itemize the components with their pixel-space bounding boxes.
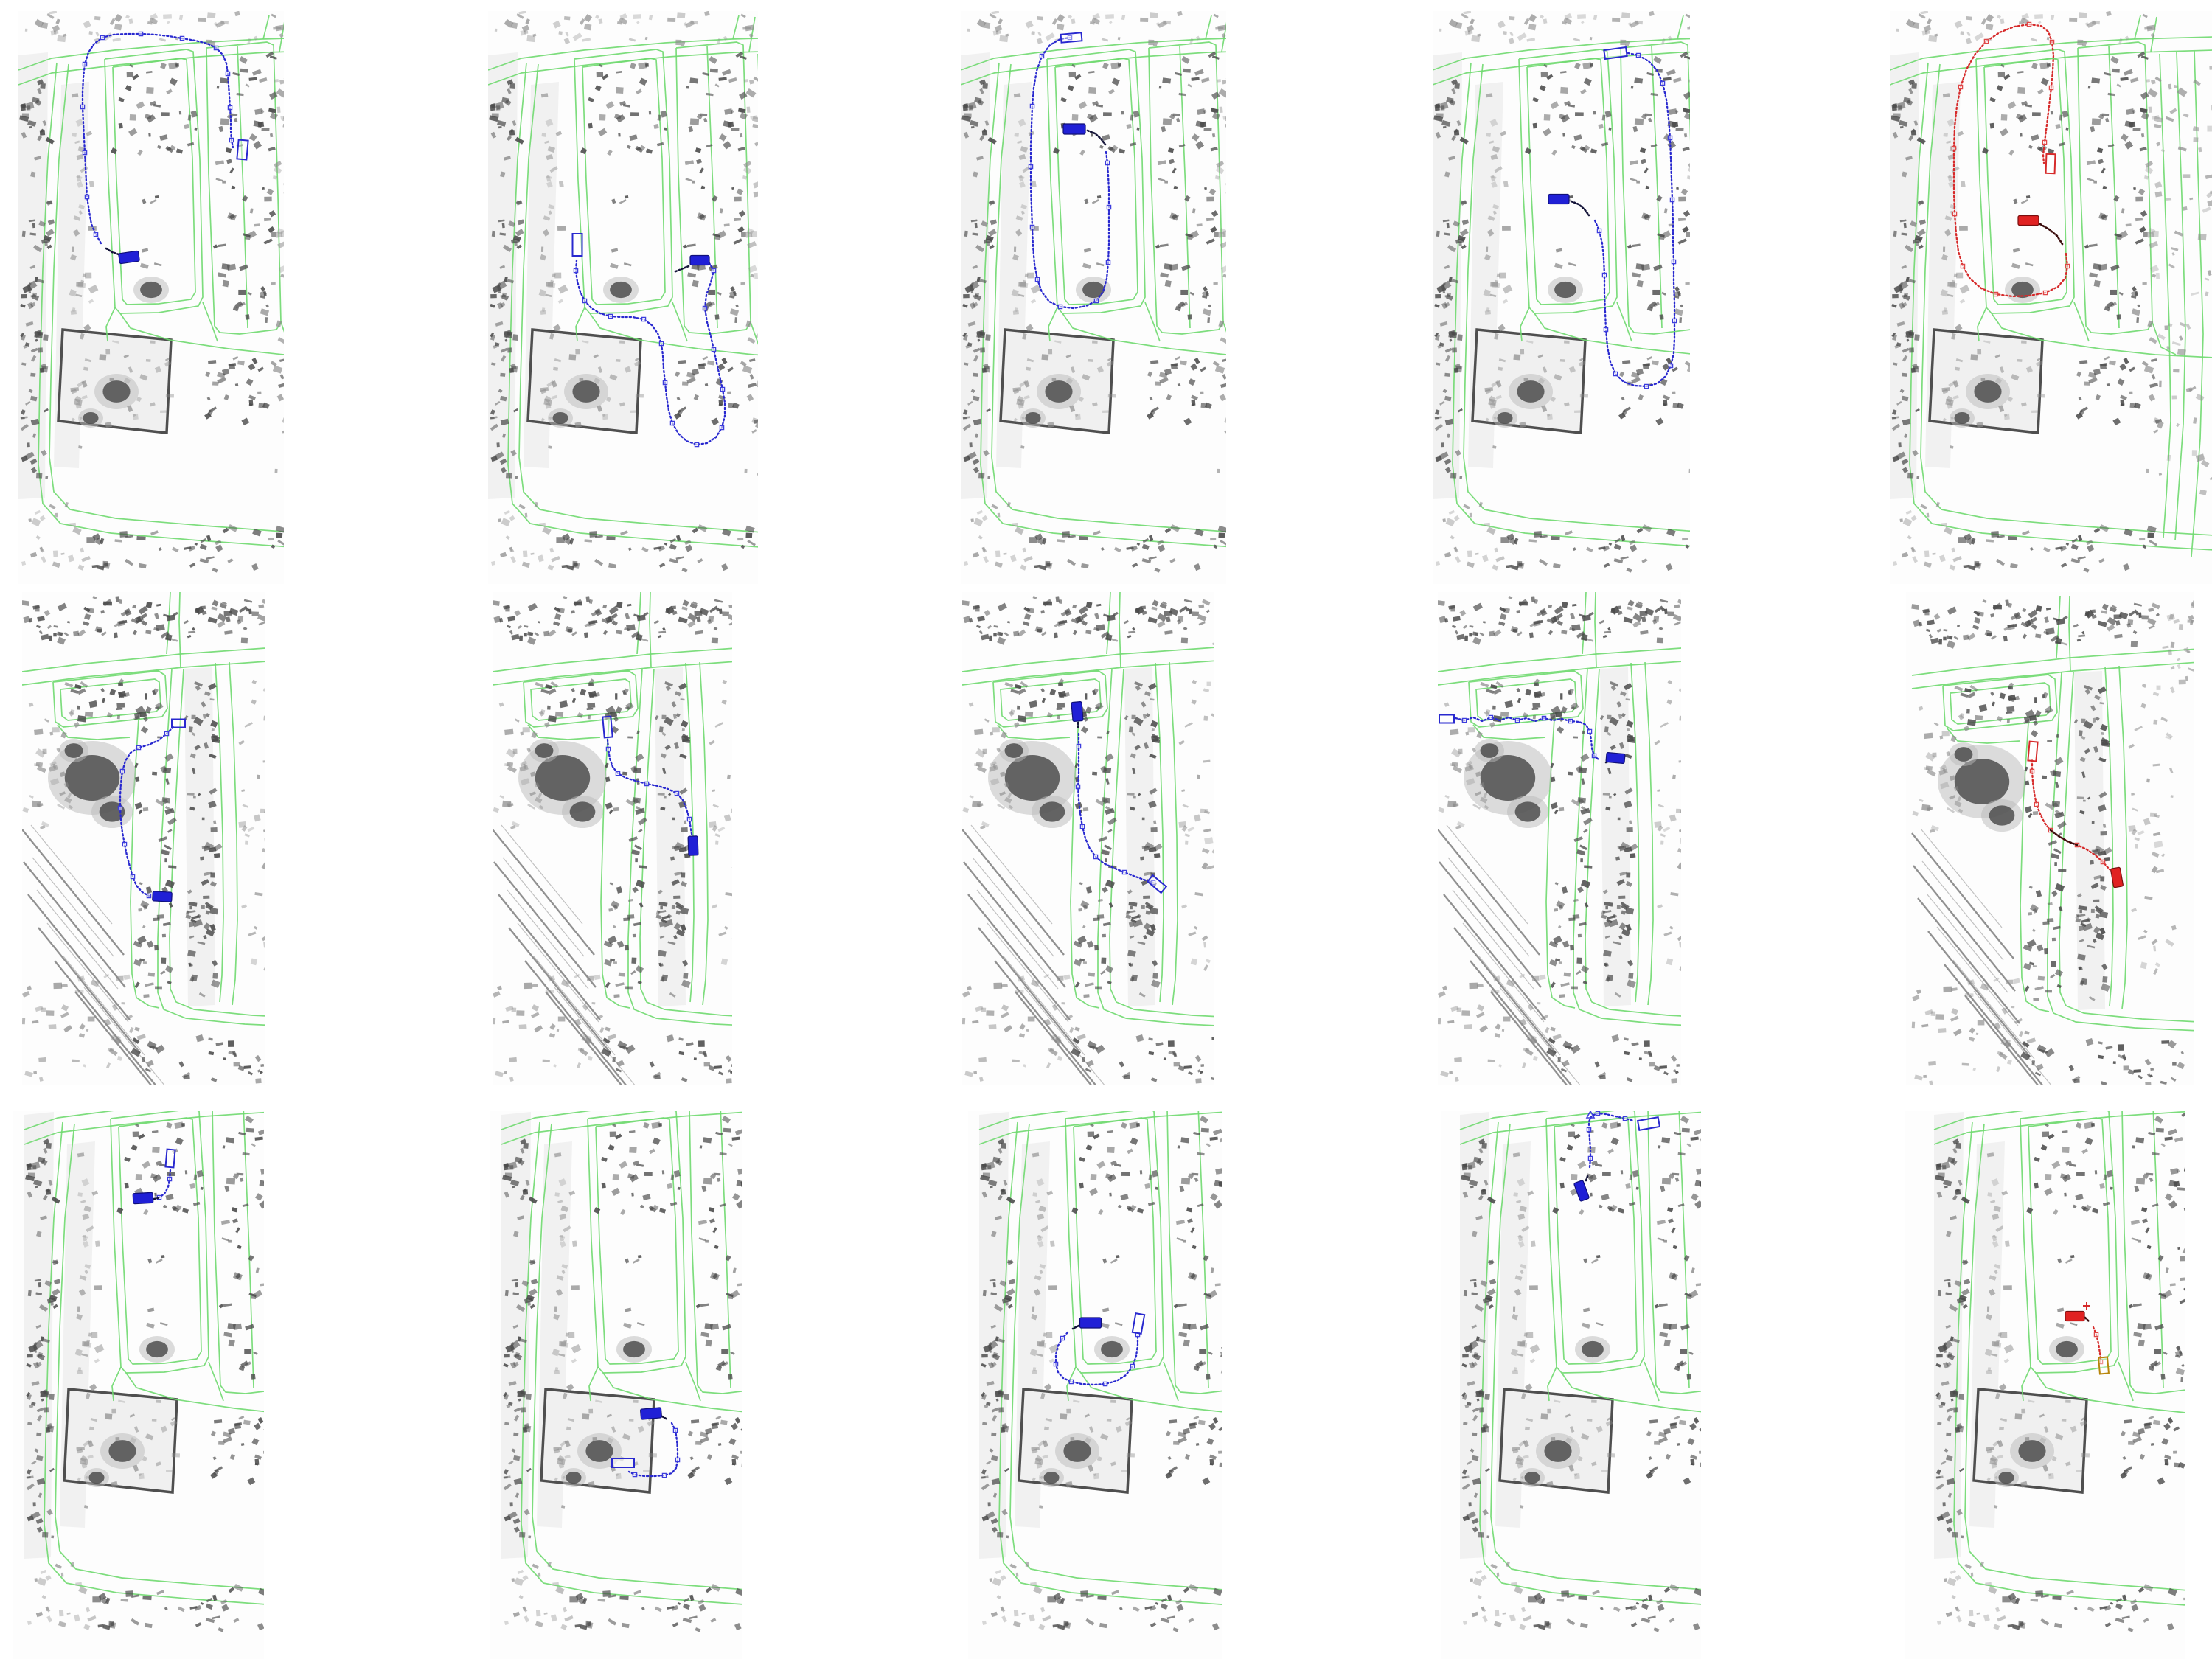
waypoint-marker <box>1961 264 1964 268</box>
vehicle-box <box>1063 124 1085 134</box>
tree-blob <box>1481 743 1499 758</box>
map-canvas-r3c1 <box>13 1111 264 1659</box>
waypoint-marker <box>641 317 645 321</box>
waypoint-marker <box>720 425 723 429</box>
tree-blob <box>1043 1472 1059 1484</box>
waypoint-marker <box>1489 715 1492 719</box>
tree-blob <box>585 1440 613 1462</box>
tree-blob <box>146 1341 168 1357</box>
waypoint-marker <box>1054 1362 1057 1366</box>
map-canvas-r2c2 <box>493 592 732 1085</box>
waypoint-marker <box>582 299 586 302</box>
tree-blob <box>570 801 596 821</box>
waypoint-marker <box>136 745 140 749</box>
tree-blob <box>1974 380 2001 403</box>
waypoint-marker <box>164 731 168 735</box>
waypoint-marker <box>118 806 122 810</box>
waypoint-marker <box>1644 384 1648 388</box>
waypoint-marker <box>1107 205 1110 209</box>
waypoint-marker <box>1587 1127 1590 1131</box>
trajectory-figure <box>0 0 2212 1659</box>
waypoint-marker <box>616 771 619 775</box>
tree-blob <box>1025 412 1040 424</box>
tree-blob <box>1045 380 1072 403</box>
map-canvas-r2c4 <box>1438 592 1681 1085</box>
vehicle-box <box>133 1192 153 1203</box>
waypoint-marker <box>1093 855 1097 858</box>
tree-blob <box>88 1472 104 1484</box>
waypoint-marker <box>1592 754 1596 757</box>
waypoint-marker <box>83 62 86 66</box>
waypoint-marker <box>1069 1380 1073 1383</box>
map-canvas-r3c2 <box>490 1111 742 1659</box>
tree-blob <box>552 412 568 424</box>
tree-blob <box>102 380 130 403</box>
waypoint-marker <box>120 769 124 773</box>
waypoint-marker <box>1994 292 1997 296</box>
map-panel-r1c4 <box>1433 11 1690 584</box>
waypoint-marker <box>83 150 86 154</box>
map-panel-r1c5 <box>1890 11 2212 584</box>
tree-blob <box>2018 1440 2045 1462</box>
waypoint-marker <box>662 1473 666 1477</box>
waypoint-marker <box>1672 319 1676 322</box>
waypoint-marker <box>1130 1364 1134 1368</box>
waypoint-marker <box>1515 718 1519 722</box>
waypoint-marker <box>122 842 126 846</box>
tree-blob <box>1101 1341 1123 1357</box>
waypoint-marker <box>2043 291 2047 294</box>
waypoint-marker <box>2101 860 2104 863</box>
waypoint-marker <box>94 232 97 236</box>
tree-blob <box>566 1472 581 1484</box>
waypoint-marker <box>1952 212 1956 215</box>
waypoint-marker <box>1542 716 1545 720</box>
waypoint-marker <box>167 1177 171 1180</box>
waypoint-marker <box>1030 225 1034 229</box>
tree-blob <box>572 380 599 403</box>
vehicle-box <box>690 256 709 265</box>
map-canvas-r1c1 <box>18 11 284 584</box>
waypoint-marker <box>2065 264 2069 268</box>
waypoint-marker <box>1040 54 1043 58</box>
waypoint-marker <box>720 387 724 391</box>
vehicle-box <box>119 251 140 264</box>
waypoint-marker <box>1035 277 1039 281</box>
map-canvas-r2c5 <box>1906 592 2194 1085</box>
waypoint-marker <box>2042 140 2046 144</box>
waypoint-marker <box>695 442 698 446</box>
waypoint-marker <box>226 72 229 75</box>
waypoint-marker <box>1080 824 1084 828</box>
waypoint-marker <box>1058 305 1062 308</box>
map-canvas-r3c3 <box>968 1111 1222 1659</box>
waypoint-marker <box>670 421 674 425</box>
waypoint-marker <box>712 347 715 351</box>
tree-blob <box>1989 805 2015 825</box>
map-panel-r3c2 <box>490 1111 742 1659</box>
map-panel-r3c4 <box>1441 1111 1701 1659</box>
goal-box <box>2028 742 2037 762</box>
vehicle-box <box>2018 216 2039 226</box>
waypoint-marker <box>1958 85 1962 88</box>
waypoint-marker <box>2034 802 2038 806</box>
vehicle-box <box>640 1408 661 1419</box>
map-panel-r2c4 <box>1438 592 1681 1085</box>
waypoint-marker <box>1105 161 1109 164</box>
vehicle-box <box>688 836 698 855</box>
map-canvas-r3c4 <box>1441 1111 1701 1659</box>
waypoint-marker <box>1672 260 1675 263</box>
tree-blob <box>1517 380 1544 403</box>
map-panel-r3c3 <box>968 1111 1222 1659</box>
vehicle-box <box>153 891 173 902</box>
waypoint-marker <box>2049 86 2053 89</box>
waypoint-marker <box>663 380 667 384</box>
tree-blob <box>1515 801 1541 821</box>
waypoint-marker <box>1029 164 1032 168</box>
tree-blob <box>65 743 83 758</box>
waypoint-marker <box>1670 198 1674 201</box>
tree-blob <box>1554 282 1576 298</box>
waypoint-marker <box>100 35 104 39</box>
waypoint-marker <box>1636 53 1640 57</box>
waypoint-marker <box>1588 1156 1592 1160</box>
waypoint-marker <box>1597 229 1601 232</box>
waypoint-marker <box>1613 372 1617 375</box>
map-panel-r2c3 <box>962 592 1214 1085</box>
waypoint-marker <box>659 341 663 345</box>
waypoint-marker <box>228 105 232 109</box>
waypoint-marker <box>675 1458 679 1461</box>
goal-box <box>612 1458 634 1467</box>
waypoint-marker <box>1660 81 1664 85</box>
map-canvas-r2c1 <box>22 592 265 1085</box>
waypoint-marker <box>1094 299 1098 302</box>
waypoint-marker <box>574 268 577 272</box>
waypoint-marker <box>633 1472 636 1476</box>
tree-blob <box>1954 412 1969 424</box>
tree-blob <box>1524 1472 1540 1484</box>
waypoint-marker <box>80 105 84 108</box>
goal-box <box>165 1150 175 1168</box>
goal-box <box>2098 1357 2109 1374</box>
goal-box <box>237 139 248 159</box>
map-canvas-r1c2 <box>488 11 758 584</box>
waypoint-marker <box>2050 40 2053 44</box>
waypoint-marker <box>1060 1336 1064 1340</box>
history-path <box>154 1198 158 1199</box>
waypoint-marker <box>608 314 612 318</box>
waypoint-marker <box>147 894 150 897</box>
tree-blob <box>1005 743 1023 758</box>
map-canvas-r3c5 <box>1905 1111 2185 1659</box>
goal-box <box>1439 715 1454 723</box>
waypoint-marker <box>1668 136 1672 139</box>
goal-box <box>172 720 185 728</box>
map-panel-r3c5 <box>1905 1111 2185 1659</box>
vehicle-box <box>2065 1312 2084 1321</box>
waypoint-marker <box>1984 39 1988 43</box>
waypoint-marker <box>1076 785 1079 788</box>
waypoint-marker <box>1596 1111 1599 1115</box>
waypoint-marker <box>1587 729 1591 733</box>
waypoint-marker <box>1669 364 1672 367</box>
map-panel-r2c5 <box>1906 592 2194 1085</box>
waypoint-marker <box>1604 327 1607 331</box>
map-panel-r1c2 <box>488 11 758 584</box>
waypoint-marker <box>712 268 715 272</box>
waypoint-marker <box>131 874 134 878</box>
waypoint-marker <box>1106 260 1110 264</box>
tree-blob <box>1998 1472 2014 1484</box>
waypoint-marker <box>673 1428 677 1432</box>
map-canvas-r1c5 <box>1890 11 2212 584</box>
vehicle-box <box>1071 701 1083 721</box>
tree-blob <box>1040 801 1065 821</box>
waypoint-marker <box>606 747 610 751</box>
map-panel-r1c3 <box>961 11 1226 584</box>
waypoint-marker <box>214 46 218 49</box>
tree-blob <box>140 282 162 298</box>
tree-blob <box>610 282 632 298</box>
waypoint-marker <box>675 791 678 795</box>
map-panel-r1c1 <box>18 11 284 584</box>
map-panel-r3c1 <box>13 1111 264 1659</box>
map-panel-r2c1 <box>22 592 265 1085</box>
waypoint-marker <box>687 817 691 821</box>
map-panel-r2c2 <box>493 592 732 1085</box>
waypoint-marker <box>1462 718 1466 722</box>
vehicle-box <box>1606 752 1625 763</box>
waypoint-marker <box>180 36 184 40</box>
waypoint-marker <box>703 306 706 310</box>
tree-blob <box>1063 1440 1091 1462</box>
goal-box <box>1061 32 1082 42</box>
waypoint-marker <box>644 782 648 785</box>
tree-blob <box>623 1341 645 1357</box>
waypoint-marker <box>1568 719 1572 723</box>
tree-blob <box>1955 747 1973 762</box>
tree-blob <box>108 1440 136 1462</box>
map-canvas-r2c3 <box>962 592 1214 1085</box>
waypoint-marker <box>1952 146 1955 150</box>
waypoint-marker <box>229 138 233 142</box>
map-canvas-r1c4 <box>1433 11 1690 584</box>
waypoint-marker <box>1122 870 1126 874</box>
tree-blob <box>2056 1341 2078 1357</box>
tree-blob <box>1497 412 1512 424</box>
waypoint-marker <box>139 32 142 35</box>
waypoint-marker <box>1602 273 1606 276</box>
waypoint-marker <box>2094 1332 2098 1336</box>
tree-blob <box>1582 1341 1604 1357</box>
map-canvas-r1c3 <box>961 11 1226 584</box>
tree-blob <box>535 743 554 758</box>
goal-box <box>602 717 612 738</box>
waypoint-marker <box>85 195 88 198</box>
waypoint-marker <box>2030 769 2034 773</box>
goal-box <box>573 234 582 256</box>
waypoint-marker <box>2027 22 2031 26</box>
vehicle-box <box>1548 195 1569 204</box>
tree-blob <box>83 412 98 424</box>
waypoint-marker <box>1623 1116 1627 1120</box>
vehicle-box <box>1080 1318 1102 1328</box>
waypoint-marker <box>1103 1382 1107 1385</box>
tree-blob <box>1082 282 1105 298</box>
tree-blob <box>1544 1440 1571 1462</box>
goal-box <box>2046 154 2056 173</box>
waypoint-marker <box>1077 744 1080 748</box>
waypoint-marker <box>1030 104 1034 108</box>
